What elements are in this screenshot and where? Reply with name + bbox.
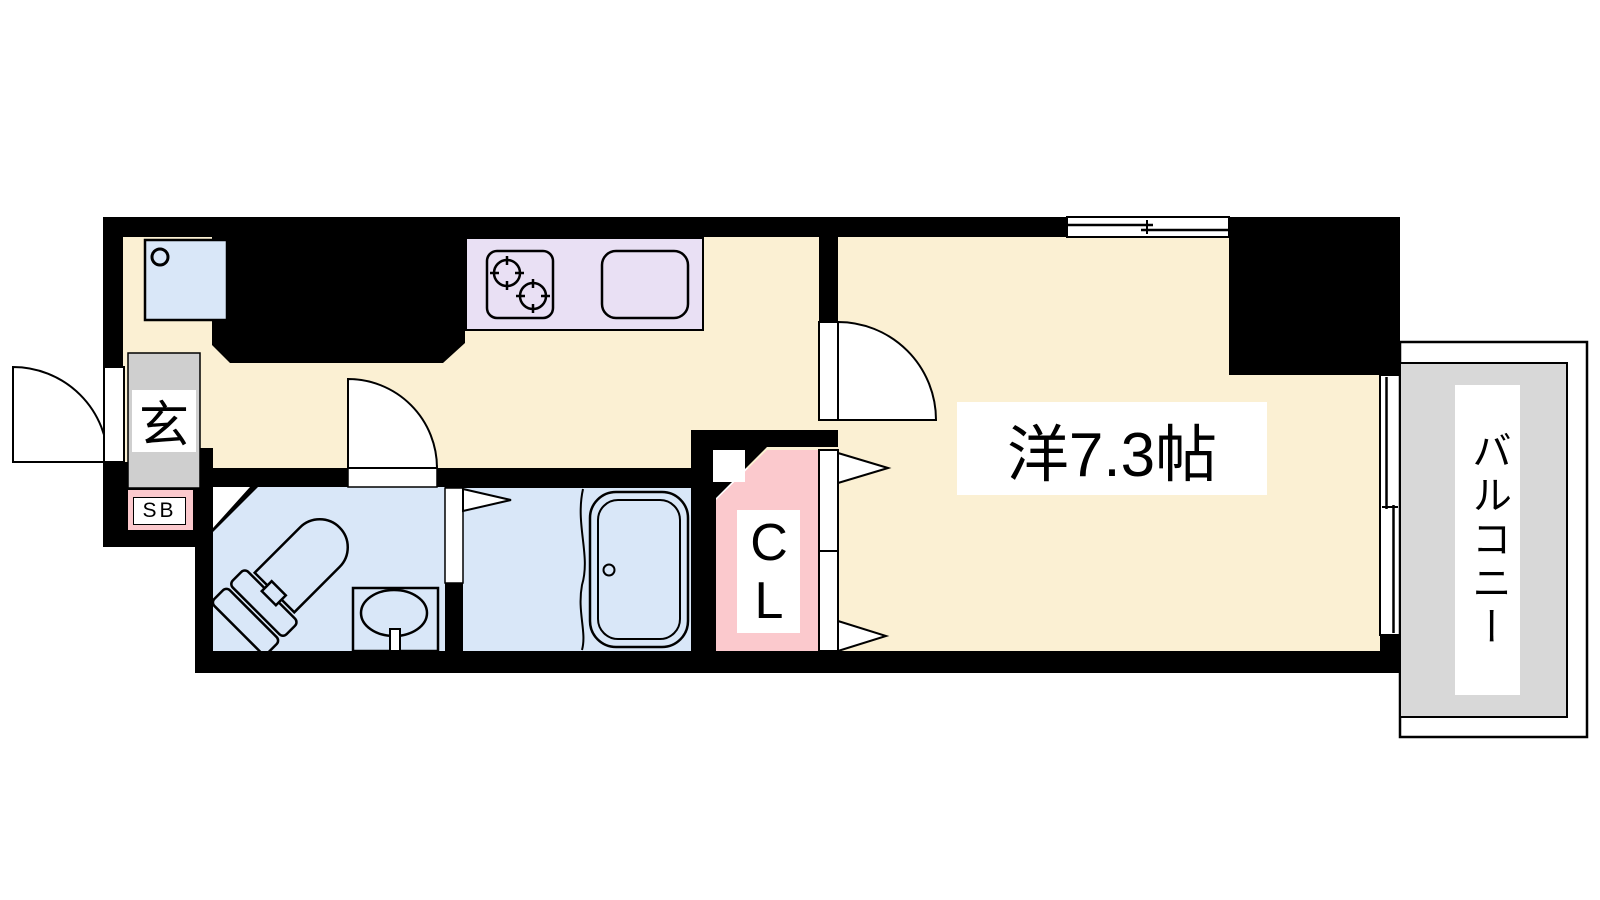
- closet-label: CL: [737, 510, 800, 633]
- kitchen: [466, 238, 703, 330]
- top-window: [1067, 217, 1229, 237]
- pipe-shaft: [713, 450, 745, 482]
- left-wall-upper: [103, 217, 123, 367]
- floor-plan: 玄 SB CL 洋7.3帖 バルコニー: [0, 0, 1600, 900]
- entrance-label: 玄: [132, 390, 196, 452]
- entrance-door: [13, 367, 124, 462]
- bathroom-floor: [463, 488, 691, 651]
- western-room-label: 洋7.3帖: [957, 402, 1267, 495]
- washbasin-icon: [353, 588, 438, 651]
- shoe-box-label: SB: [133, 497, 186, 525]
- floor-plan-drawing: [0, 0, 1600, 900]
- balcony-label: バルコニー: [1455, 385, 1520, 695]
- center-wall-block: [212, 218, 465, 363]
- room-partition-wall: [819, 236, 838, 322]
- corner-wall-block: [1229, 217, 1400, 375]
- balcony-window: [1380, 375, 1400, 635]
- washing-machine-pan-icon: [145, 240, 227, 320]
